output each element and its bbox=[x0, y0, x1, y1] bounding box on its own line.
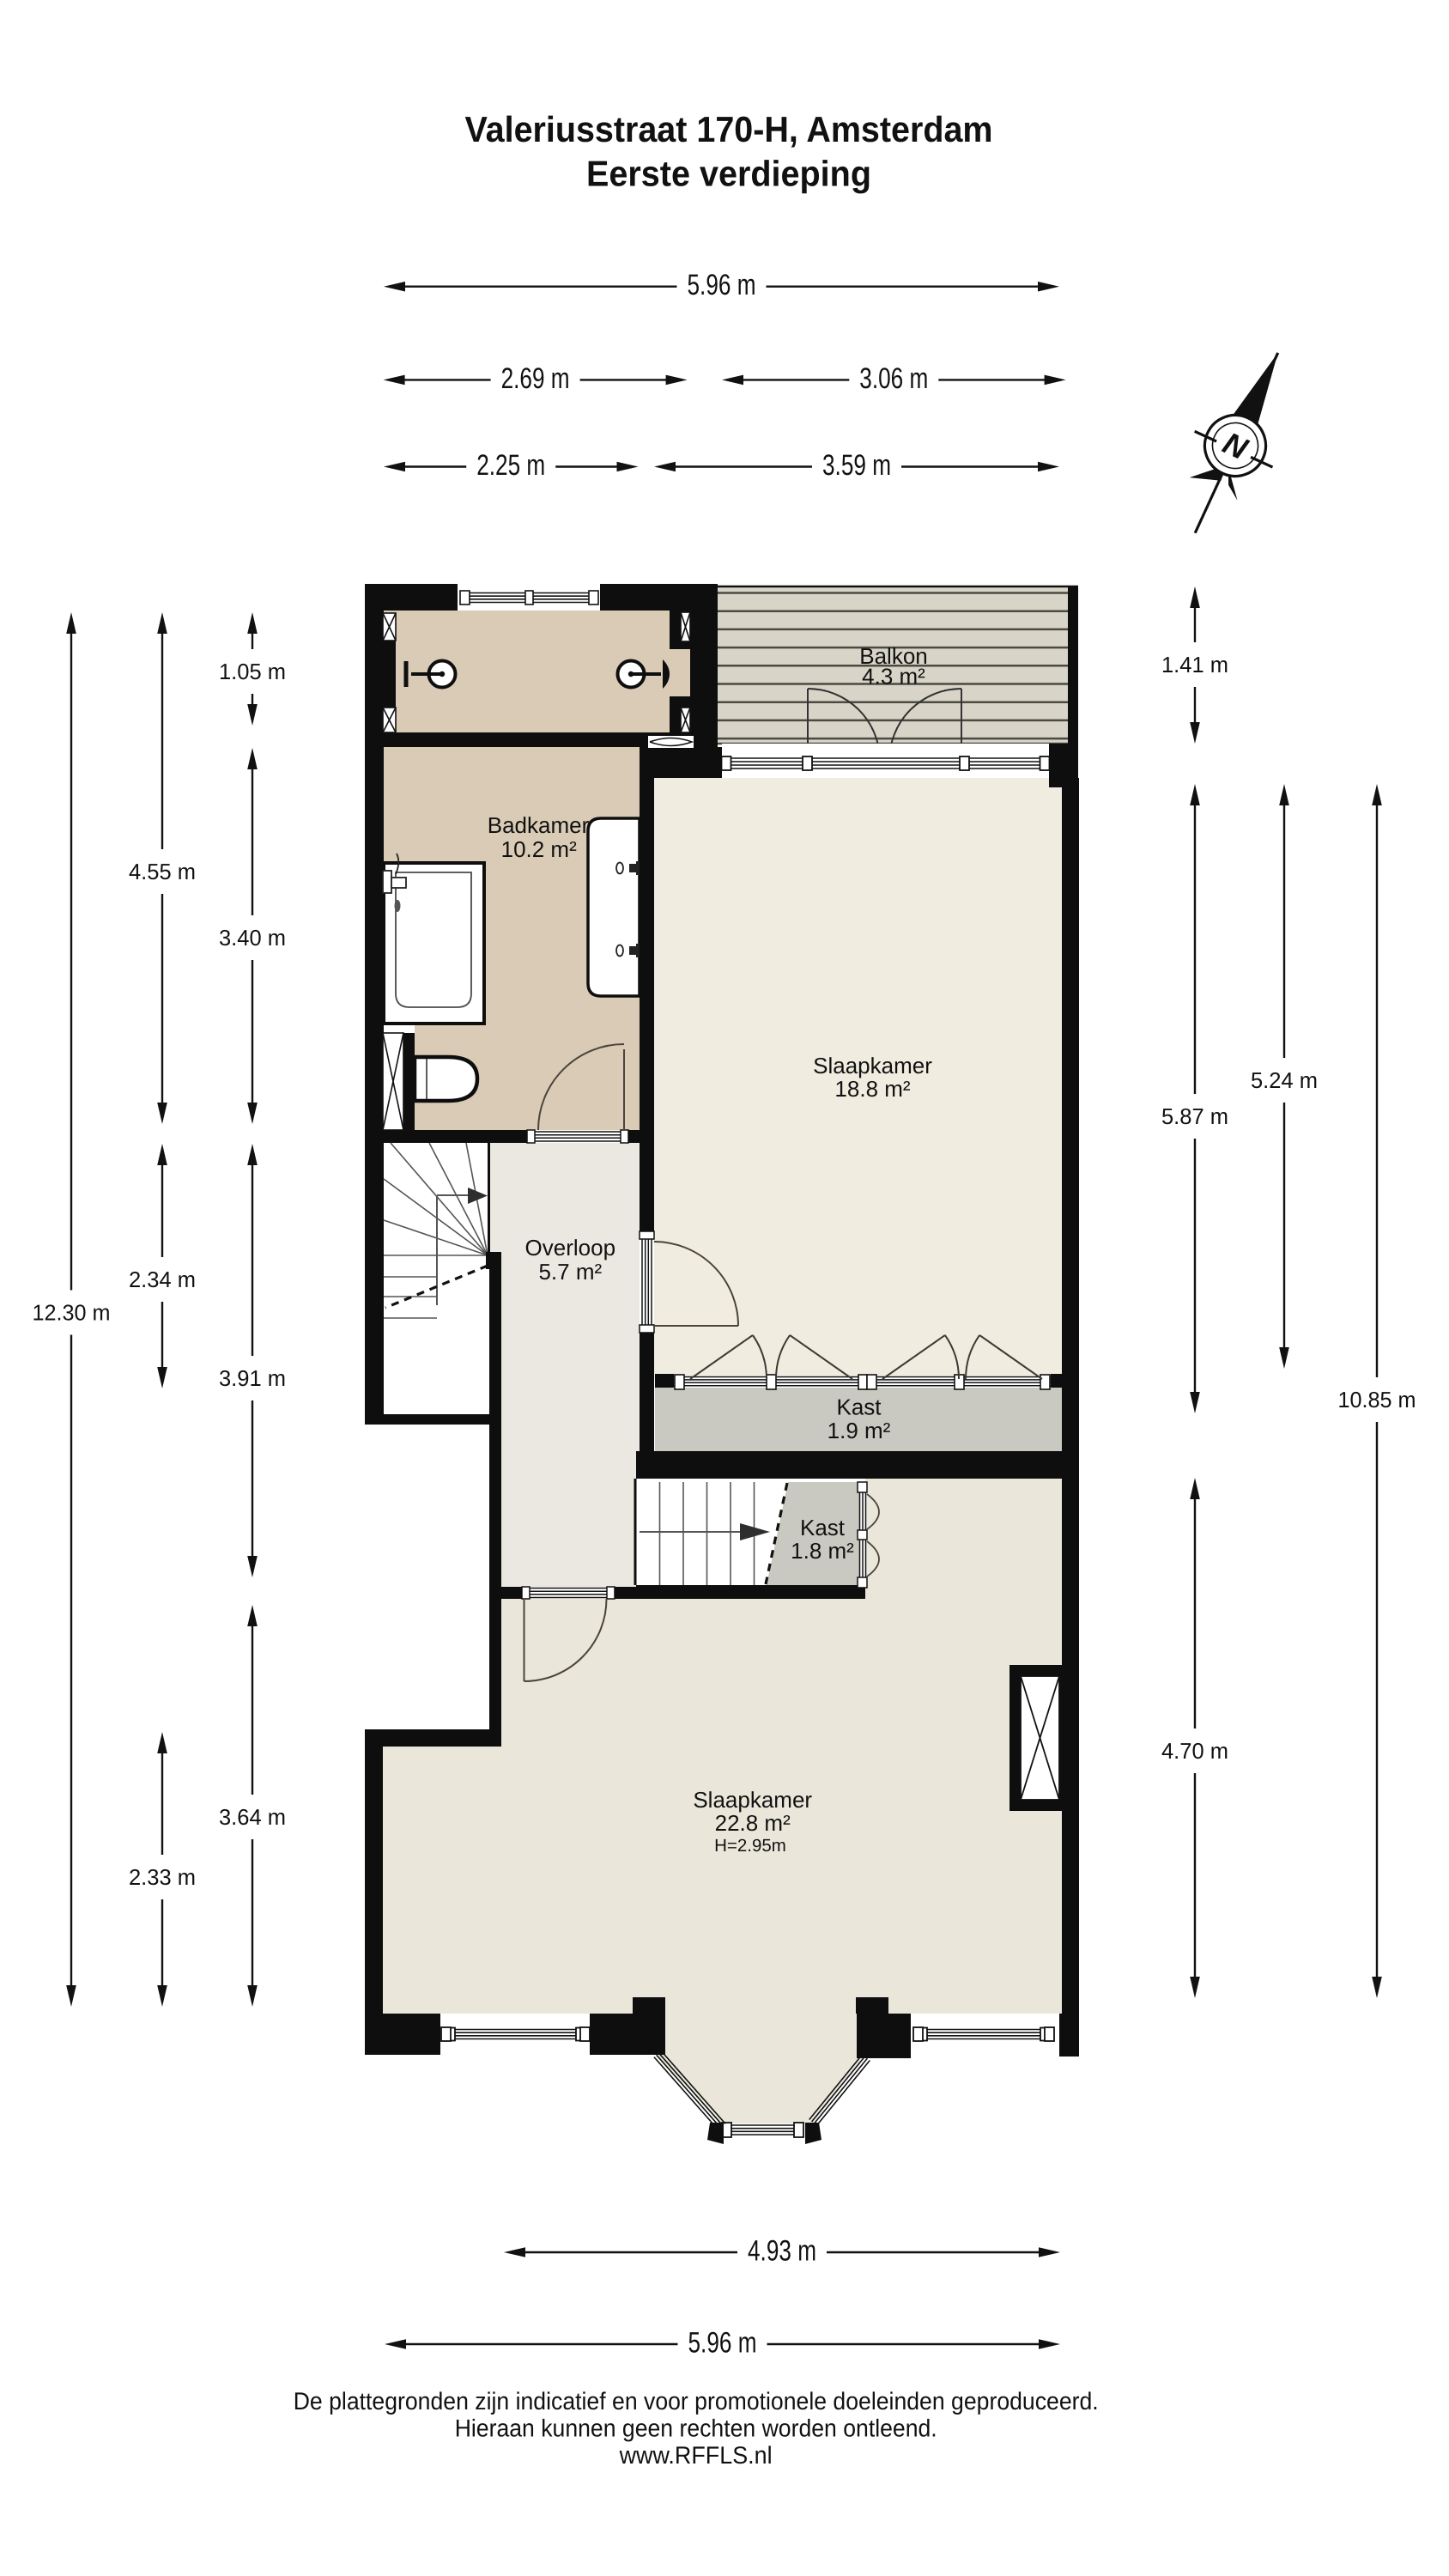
svg-text:4.55 m: 4.55 m bbox=[129, 859, 196, 884]
svg-text:5.96 m: 5.96 m bbox=[688, 2327, 757, 2360]
svg-text:1.9 m²: 1.9 m² bbox=[828, 1418, 891, 1443]
svg-text:4.3 m²: 4.3 m² bbox=[862, 664, 925, 690]
svg-text:12.30 m: 12.30 m bbox=[33, 1300, 111, 1326]
svg-text:3.40 m: 3.40 m bbox=[219, 925, 286, 951]
svg-text:4.70 m: 4.70 m bbox=[1161, 1738, 1228, 1764]
svg-text:Kast: Kast bbox=[800, 1515, 846, 1540]
svg-text:3.91 m: 3.91 m bbox=[219, 1365, 286, 1391]
svg-text:1.05 m: 1.05 m bbox=[219, 659, 286, 684]
svg-text:3.59 m: 3.59 m bbox=[822, 449, 891, 482]
svg-text:2.69 m: 2.69 m bbox=[501, 362, 570, 395]
svg-text:www.RFFLS.nl: www.RFFLS.nl bbox=[619, 2442, 773, 2470]
svg-text:5.7 m²: 5.7 m² bbox=[538, 1259, 602, 1285]
svg-text:2.25 m: 2.25 m bbox=[476, 449, 545, 482]
svg-text:Kast: Kast bbox=[836, 1394, 882, 1420]
svg-text:Hieraan kunnen geen rechten wo: Hieraan kunnen geen rechten worden ontle… bbox=[455, 2415, 937, 2443]
svg-text:H=2.95m: H=2.95m bbox=[714, 1836, 786, 1856]
svg-text:2.33 m: 2.33 m bbox=[129, 1864, 196, 1890]
svg-text:1.8 m²: 1.8 m² bbox=[791, 1538, 854, 1564]
svg-text:Slaapkamer: Slaapkamer bbox=[813, 1053, 932, 1078]
svg-text:5.24 m: 5.24 m bbox=[1251, 1067, 1318, 1093]
svg-text:Eerste verdieping: Eerste verdieping bbox=[586, 154, 871, 194]
svg-text:Slaapkamer: Slaapkamer bbox=[693, 1787, 812, 1813]
svg-text:1.41 m: 1.41 m bbox=[1161, 652, 1228, 677]
svg-text:22.8 m²: 22.8 m² bbox=[715, 1810, 791, 1836]
svg-text:2.34 m: 2.34 m bbox=[129, 1267, 196, 1292]
svg-text:Valeriusstraat 170-H, Amsterda: Valeriusstraat 170-H, Amsterdam bbox=[465, 109, 993, 149]
svg-text:5.87 m: 5.87 m bbox=[1161, 1103, 1228, 1129]
svg-text:De plattegronden zijn indicati: De plattegronden zijn indicatief en voor… bbox=[294, 2388, 1099, 2415]
svg-text:10.85 m: 10.85 m bbox=[1338, 1387, 1416, 1413]
svg-text:3.64 m: 3.64 m bbox=[219, 1804, 286, 1830]
svg-text:10.2 m²: 10.2 m² bbox=[501, 836, 577, 862]
svg-text:5.96 m: 5.96 m bbox=[688, 269, 756, 301]
svg-text:4.93 m: 4.93 m bbox=[748, 2235, 816, 2268]
svg-text:Overloop: Overloop bbox=[525, 1235, 616, 1261]
svg-text:3.06 m: 3.06 m bbox=[859, 362, 928, 395]
svg-text:18.8 m²: 18.8 m² bbox=[834, 1076, 910, 1102]
svg-text:Badkamer: Badkamer bbox=[488, 812, 590, 838]
